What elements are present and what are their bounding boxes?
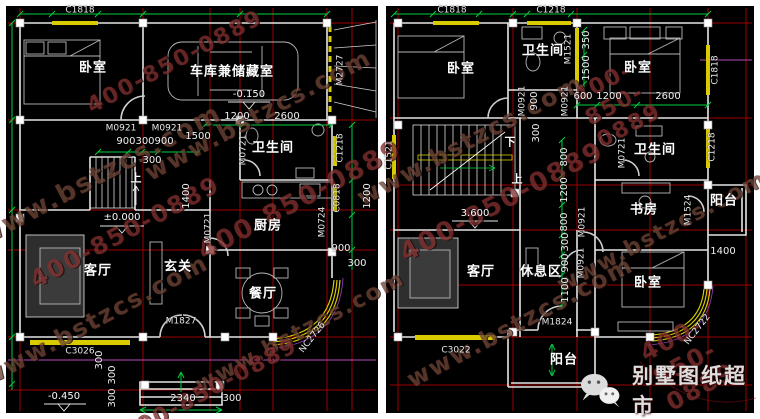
second-floor-plan-panel xyxy=(386,6,754,413)
cad-drawing-canvas: www.bstzcs.com400-850-0889www.bstzcs.com… xyxy=(0,0,760,419)
wechat-branding: 别墅图纸超市 xyxy=(576,360,760,419)
first-floor-plan-panel xyxy=(6,6,378,413)
wechat-icon xyxy=(576,368,626,413)
brand-text: 别墅图纸超市 xyxy=(632,360,760,419)
